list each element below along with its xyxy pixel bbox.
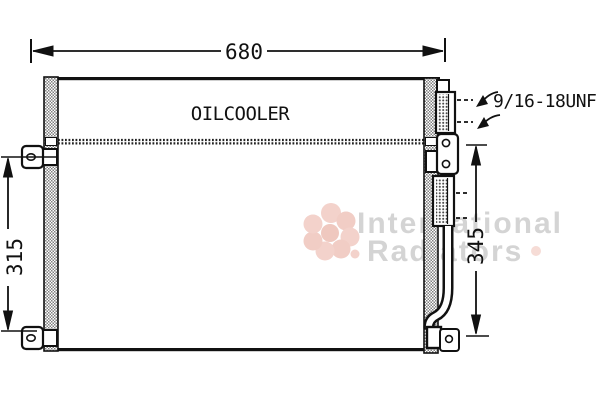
arrow-up-icon — [4, 158, 13, 177]
mounting-bracket-right-bottom — [427, 327, 459, 351]
arrow-up-icon — [472, 146, 481, 165]
part-name-label: OILCOOLER — [188, 104, 292, 124]
arrow-down-icon — [4, 311, 13, 330]
drawing-linework — [0, 0, 600, 400]
fitting-leader-lines — [457, 100, 473, 122]
leader-arrow-bottom-icon — [477, 115, 500, 129]
condenser-bottom-edge — [44, 348, 438, 351]
condenser-top-edge — [44, 77, 440, 80]
arrow-right-icon — [423, 46, 443, 56]
dim-height-left-label: 315 — [4, 227, 26, 287]
fitting-thread-label: 9/16-18UNF — [493, 92, 596, 111]
arrow-down-icon — [472, 315, 481, 334]
right-tank-divider-gap — [426, 138, 437, 146]
right-tank-top-step — [437, 80, 449, 92]
arrow-left-icon — [33, 46, 53, 56]
dim-width-label: 680 — [221, 41, 267, 63]
fitting-port-top — [436, 92, 455, 133]
dim-height-right-label: 345 — [465, 216, 487, 276]
left-tank-hatch — [44, 77, 58, 351]
core-divider-dotted-line — [58, 140, 424, 143]
left-tank-divider-gap — [46, 138, 57, 146]
brand-logo-flower-icon — [304, 203, 542, 261]
technical-drawing-canvas: International Radiators — [0, 0, 600, 400]
